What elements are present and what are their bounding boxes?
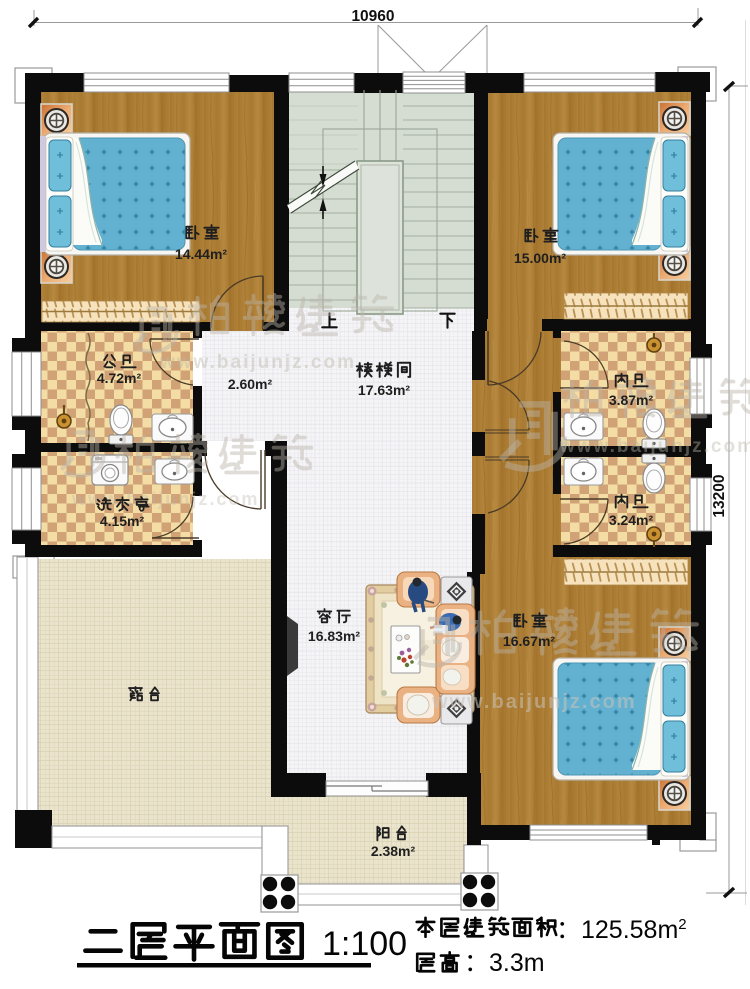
svg-text:2.60m²: 2.60m² [228, 376, 273, 392]
svg-text:www.baijunjz.com: www.baijunjz.com [159, 352, 356, 373]
svg-text:：125.58m2: ：125.58m2 [556, 916, 687, 944]
svg-text:15.00m²: 15.00m² [514, 250, 566, 266]
svg-text:www.baijunjz.com: www.baijunjz.com [431, 691, 637, 713]
svg-text:3.24m²: 3.24m² [609, 512, 654, 528]
svg-text:1:100: 1:100 [322, 925, 407, 963]
svg-text:www.baijunjz.com: www.baijunjz.com [71, 489, 259, 509]
svg-text:14.44m²: 14.44m² [175, 246, 227, 262]
svg-text:17.63m²: 17.63m² [358, 382, 410, 398]
svg-text:4.72m²: 4.72m² [97, 370, 142, 386]
svg-text:4.15m²: 4.15m² [100, 513, 145, 529]
svg-text:16.67m²: 16.67m² [503, 633, 555, 649]
svg-text:13200: 13200 [711, 474, 728, 517]
svg-text:：3.3m: ：3.3m [464, 949, 545, 977]
svg-text:16.83m²: 16.83m² [308, 628, 360, 644]
svg-text:2.38m²: 2.38m² [371, 843, 416, 859]
svg-text:3.87m²: 3.87m² [609, 392, 654, 408]
svg-text:10960: 10960 [351, 8, 394, 25]
svg-text:www.baijunjz.com: www.baijunjz.com [559, 436, 750, 457]
